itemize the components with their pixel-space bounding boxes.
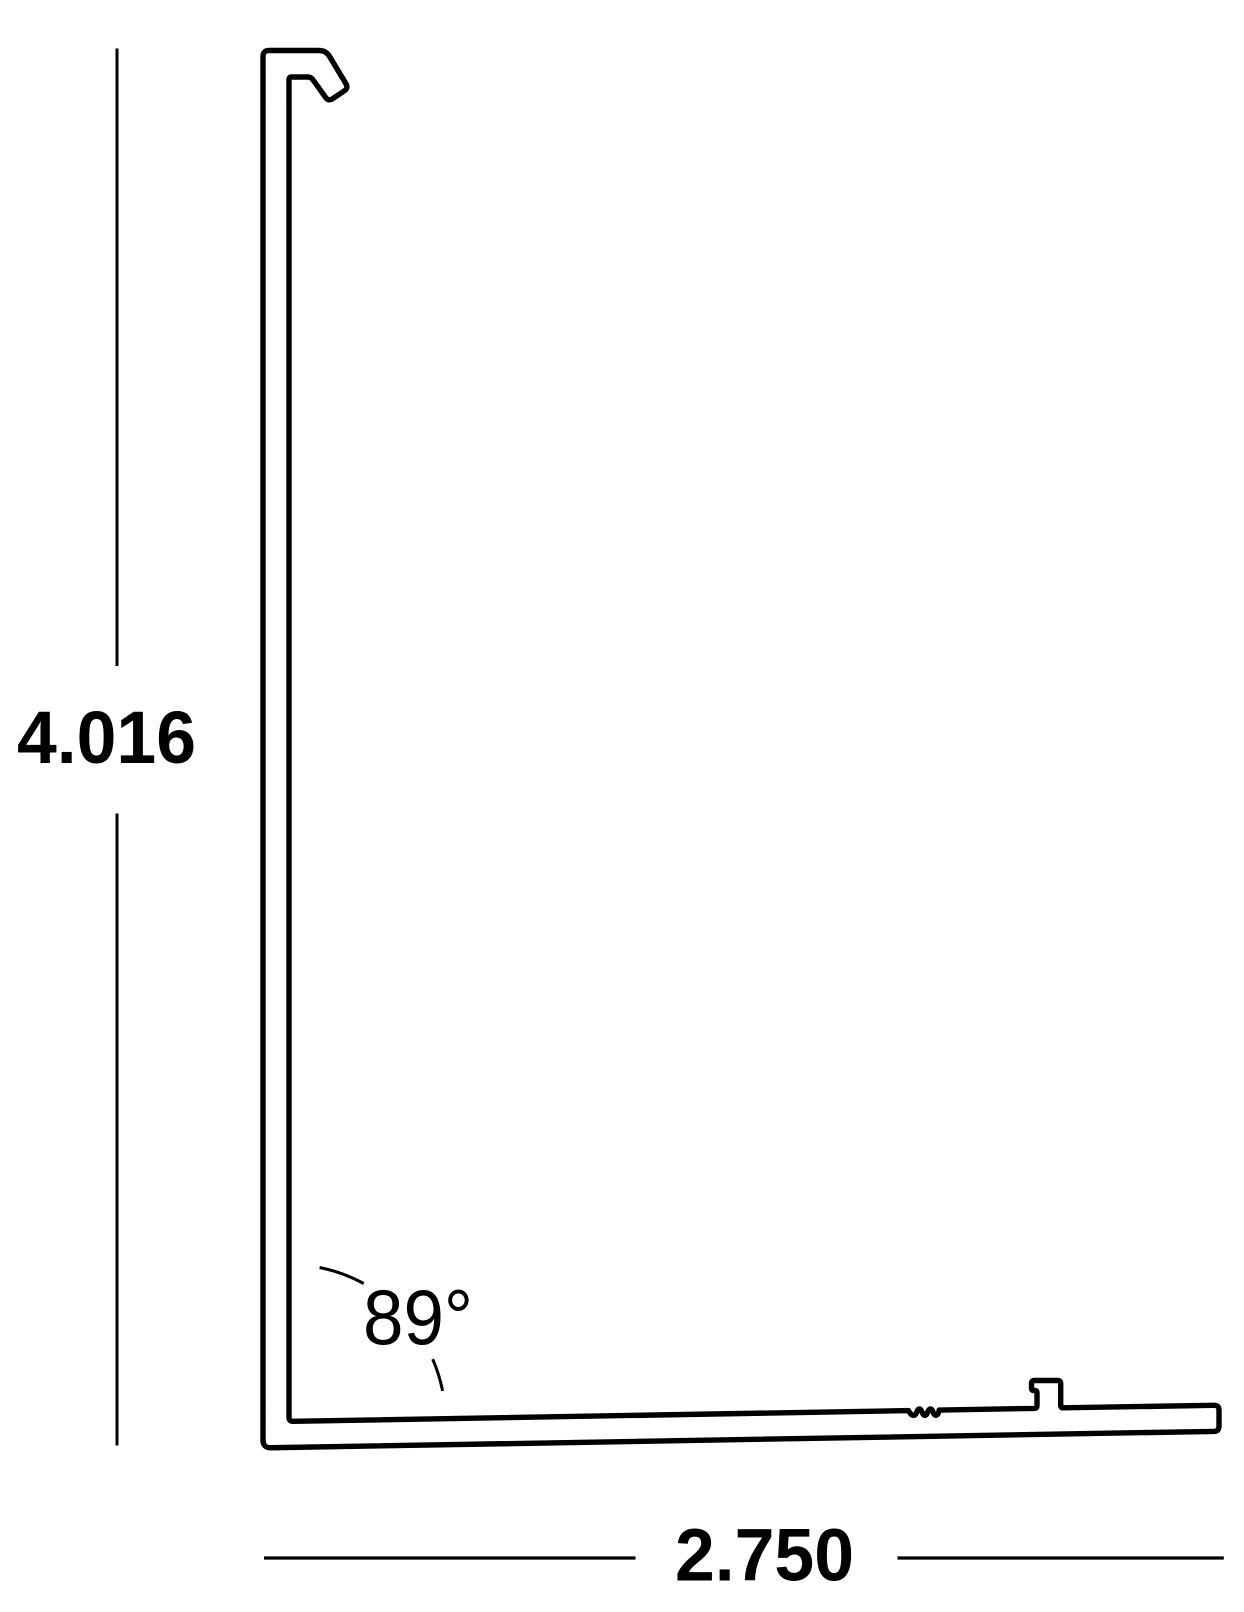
svg-text:89°: 89°	[363, 1275, 473, 1361]
svg-text:2.750: 2.750	[675, 1514, 854, 1597]
svg-text:4.016: 4.016	[17, 696, 196, 779]
